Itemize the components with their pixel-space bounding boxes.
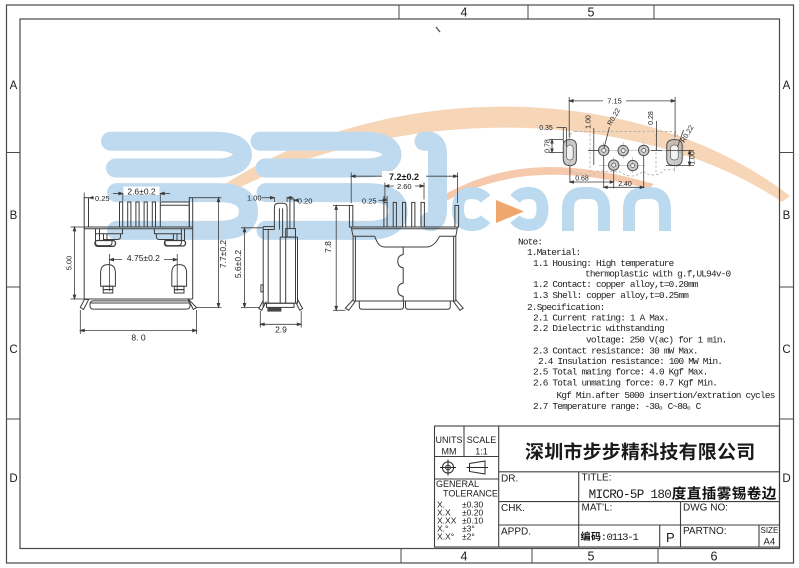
svg-text:1.00: 1.00 [690,151,697,165]
svg-text:APPD.: APPD. [501,527,531,538]
svg-text:1:1: 1:1 [475,447,488,457]
svg-text:B: B [783,210,791,222]
svg-text:5: 5 [588,550,595,564]
svg-text:5: 5 [588,6,595,20]
svg-text:6: 6 [711,550,718,564]
svg-text:1.Material:: 1.Material: [527,247,580,258]
svg-text:1.1 Housing: High temperature: 1.1 Housing: High temperature [533,258,675,269]
svg-text:P: P [666,530,675,545]
svg-text:A4: A4 [764,537,776,548]
svg-text:MICRO-5P 180: MICRO-5P 180 [589,488,672,502]
svg-text:0.25: 0.25 [362,196,377,205]
svg-text::: : [601,532,606,544]
svg-text:D: D [782,473,790,485]
svg-text:4: 4 [461,550,468,564]
svg-text:MAT’L:: MAT’L: [582,503,613,514]
svg-text:PARTNO:: PARTNO: [683,526,727,537]
svg-text:2.6±0.2: 2.6±0.2 [127,187,156,197]
svg-text:5.6±0.2: 5.6±0.2 [233,250,243,279]
svg-text:1.00: 1.00 [586,115,593,129]
svg-text:C: C [782,344,790,356]
svg-text:2.6 Total unmating force: 0.7: 2.6 Total unmating force: 0.7 Kgf Min. [533,377,717,388]
svg-text:A: A [10,80,18,92]
svg-text:0.28: 0.28 [648,111,655,125]
svg-text:±2°: ±2° [462,532,475,542]
svg-text:4.75±0.2: 4.75±0.2 [127,253,160,263]
svg-text:thermoplastic with g.f,UL94v-0: thermoplastic with g.f,UL94v-0 [585,269,732,280]
svg-text:SIZE: SIZE [761,526,779,535]
svg-text:7.2±0.2: 7.2±0.2 [389,172,419,182]
svg-text:0.68: 0.68 [575,176,589,183]
svg-text:2.7 Temperature range: -30。C~8: 2.7 Temperature range: -30。C~80。C [533,401,702,412]
svg-text:D: D [9,473,17,485]
svg-text:MM: MM [442,447,457,457]
svg-text:TOLERANCE: TOLERANCE [443,489,498,499]
svg-text:C: C [9,344,17,356]
svg-text:2.60: 2.60 [397,182,412,191]
svg-text:0113-1: 0113-1 [607,532,639,544]
svg-text:5.00: 5.00 [65,256,74,271]
svg-text:0.20: 0.20 [298,196,313,205]
svg-text:DWG NO:: DWG NO: [683,503,728,514]
svg-text:8. 0: 8. 0 [131,333,145,343]
svg-text:2.9: 2.9 [275,325,287,335]
svg-text:R0.22: R0.22 [680,124,695,144]
svg-text:7.7±0.2: 7.7±0.2 [218,240,228,269]
svg-text:B: B [10,210,18,222]
svg-text:1.3 Shell: copper alloy,t=0.25: 1.3 Shell: copper alloy,t=0.25mm [533,290,689,301]
svg-text:2.1 Current rating: 1 A Max.: 2.1 Current rating: 1 A Max. [533,313,669,324]
svg-text:4: 4 [461,6,468,20]
svg-text:2.Specification:: 2.Specification: [527,302,605,313]
svg-text:GENERAL: GENERAL [436,479,479,489]
svg-text:TITLE:: TITLE: [582,473,612,484]
svg-text:2.40: 2.40 [618,181,632,188]
svg-text:2.2 Dielectric withstanding: 2.2 Dielectric withstanding [533,323,664,334]
svg-text:1.2 Contact: copper alloy,t=0.: 1.2 Contact: copper alloy,t=0.20mm [533,279,699,290]
svg-text:1.00: 1.00 [247,194,262,203]
svg-text:2.3 Contact resistance: 30 mW: 2.3 Contact resistance: 30 mW Max. [533,346,698,357]
svg-text:UNITS: UNITS [436,435,463,445]
svg-text:A: A [783,80,791,92]
svg-text:2.4 Insulation resistance: 100: 2.4 Insulation resistance: 100 MW Min. [538,356,722,367]
svg-text:CHK.: CHK. [501,503,525,514]
svg-text:2.5 Total mating force: 4.0 Kg: 2.5 Total mating force: 4.0 Kgf Max. [533,367,707,378]
svg-text:0.35: 0.35 [539,125,553,132]
svg-text:Note:: Note: [518,237,542,248]
svg-text:SCALE: SCALE [467,435,497,445]
svg-text:DR.: DR. [501,474,518,485]
svg-text:X.X°: X.X° [437,532,454,542]
svg-text:voltage: 250 V(ac) for 1 min.: voltage: 250 V(ac) for 1 min. [586,334,727,345]
svg-text:0.25: 0.25 [95,194,110,203]
svg-text:7.8: 7.8 [323,241,333,253]
svg-text:Kgf Min.after 5000 insertion/e: Kgf Min.after 5000 insertion/extration c… [557,390,775,401]
svg-text:0.78: 0.78 [545,139,552,153]
svg-text:7.15: 7.15 [607,97,622,106]
